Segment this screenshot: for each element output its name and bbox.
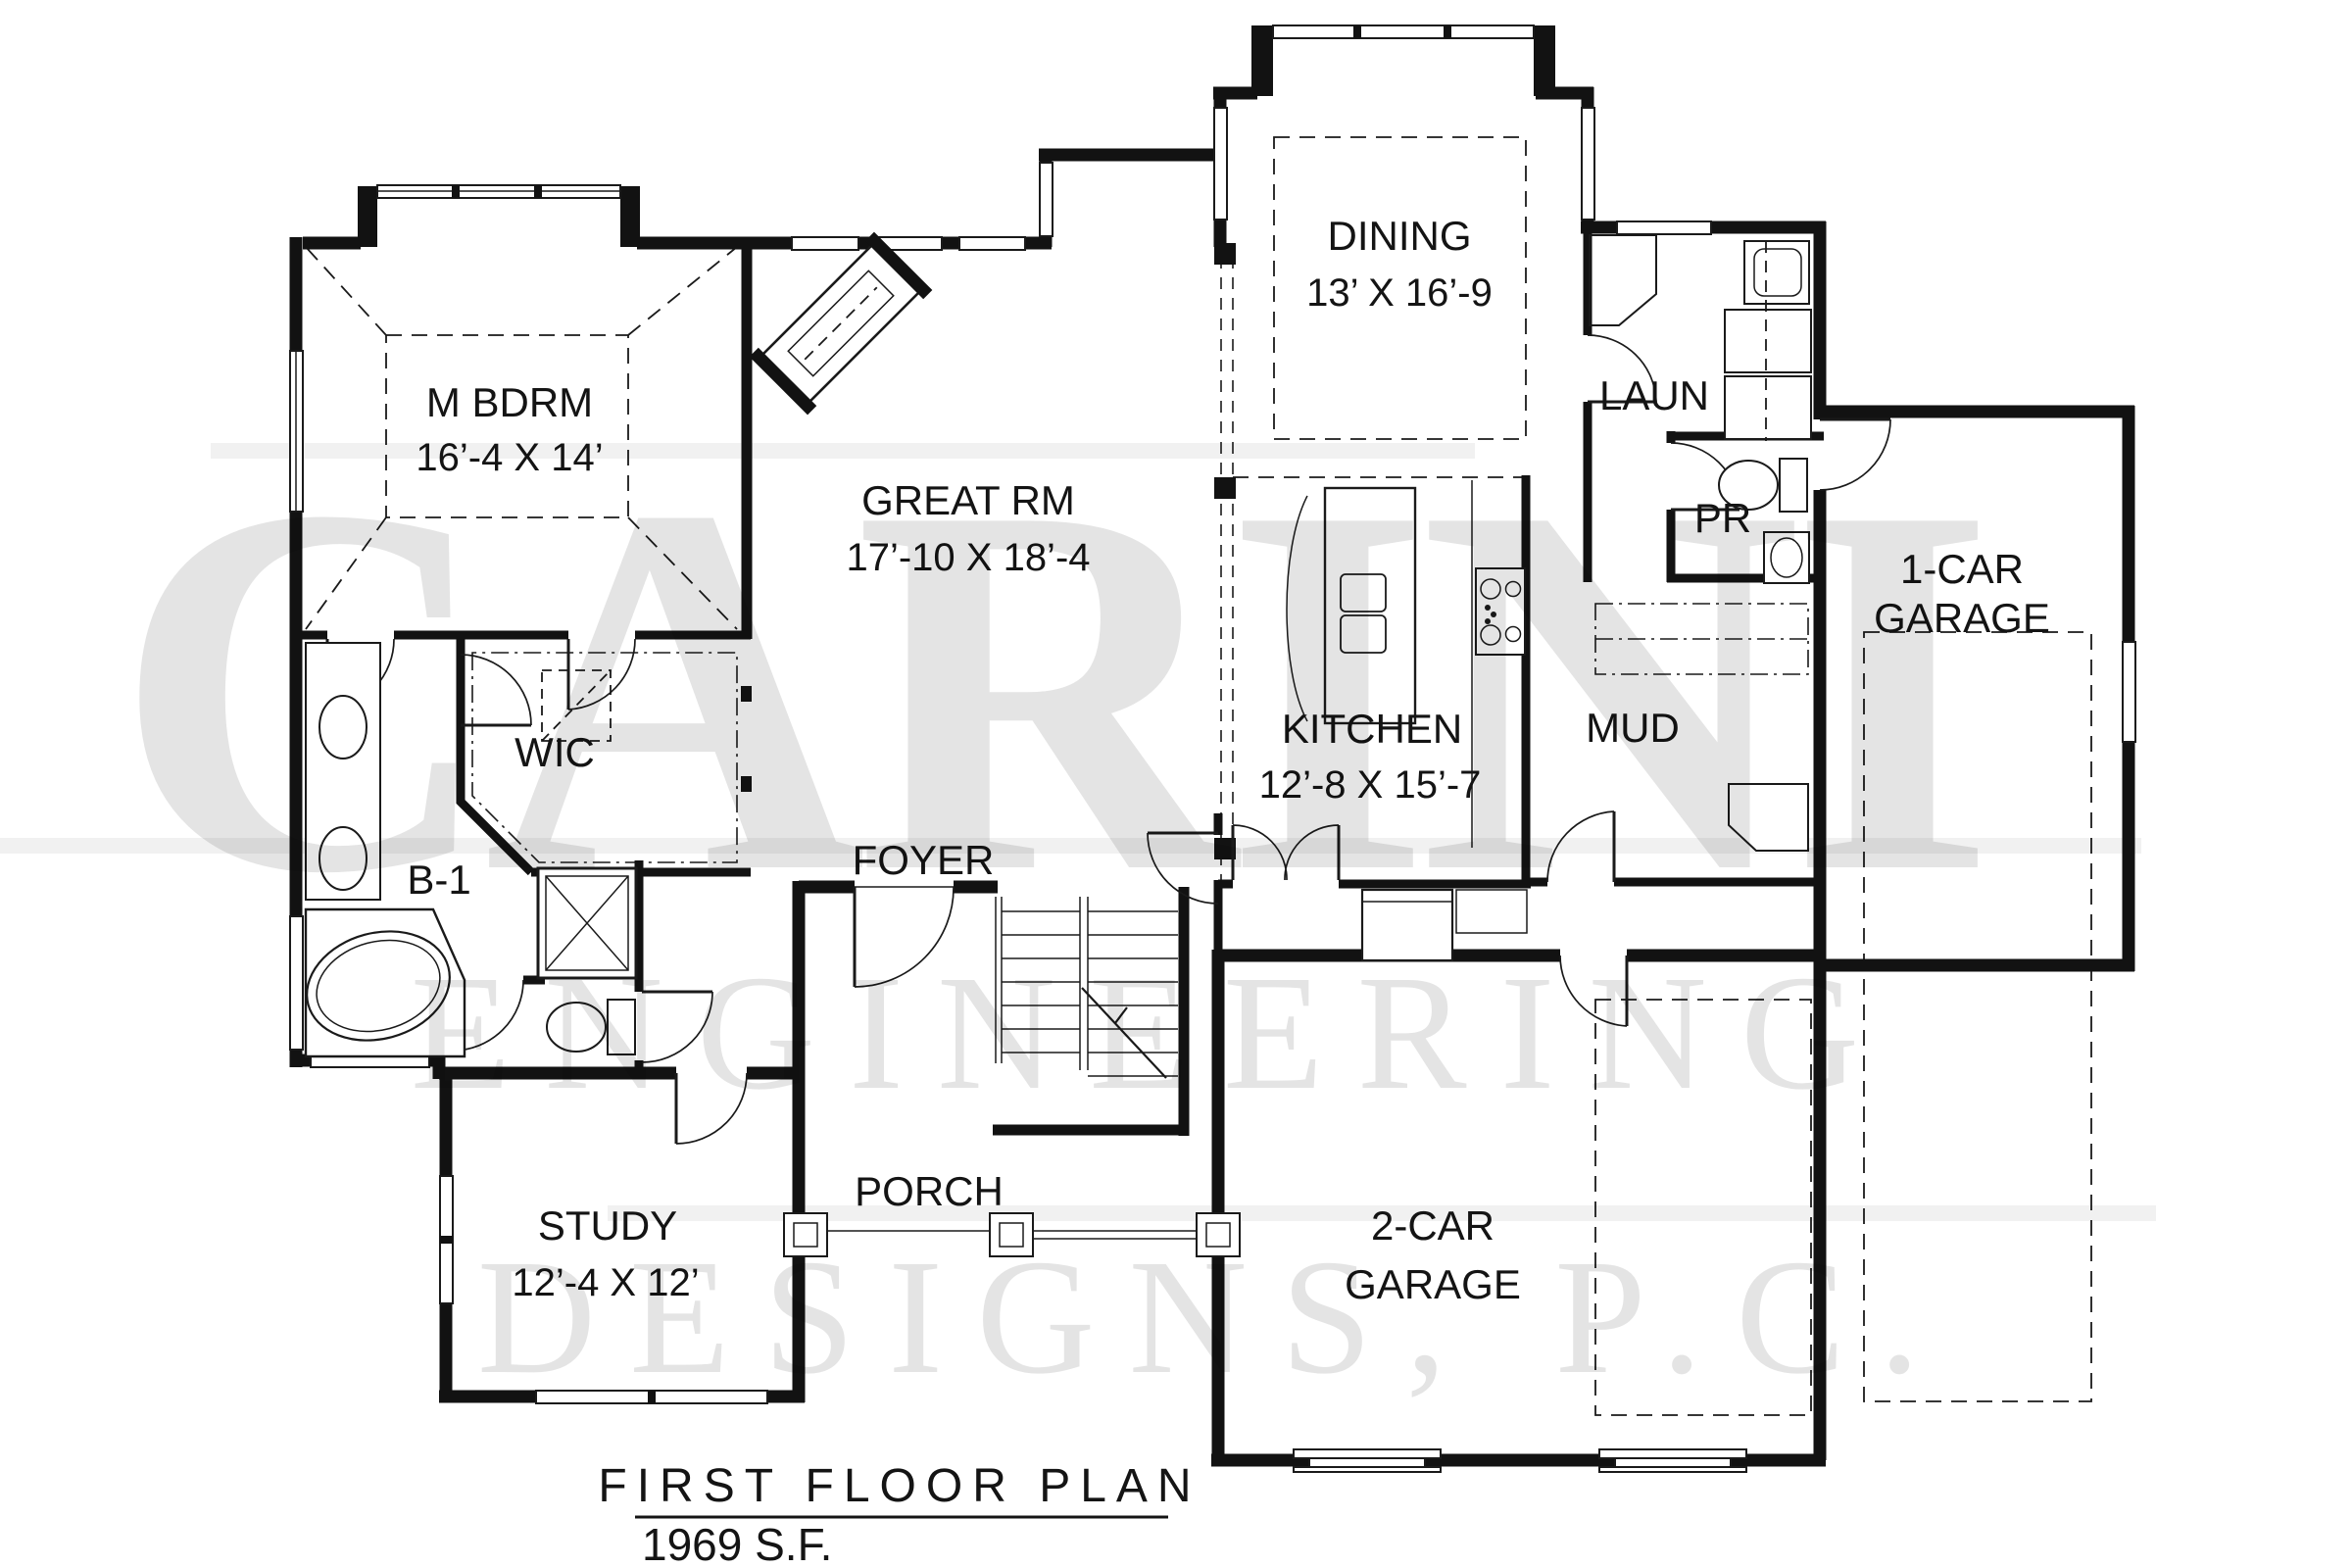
room-label-porch: PORCH xyxy=(855,1168,1004,1214)
window-dining-right xyxy=(1582,108,1594,220)
windows-study-left xyxy=(440,1176,453,1303)
window-garage-right xyxy=(2123,642,2135,742)
window-dining-bay xyxy=(1273,25,1534,38)
room-dims-dining: 13’ X 16’-9 xyxy=(1306,271,1493,315)
garage-door-2car-right xyxy=(1599,1449,1746,1472)
window-neck xyxy=(1040,163,1053,236)
watermark: CARINI ENGINEERING DESIGNS, P.C. xyxy=(114,396,1984,1408)
window-dining-left xyxy=(1214,108,1227,220)
fireplace xyxy=(750,232,933,416)
plan-area: 1969 S.F. xyxy=(642,1519,832,1568)
windows-great-room xyxy=(792,237,1025,250)
watermark-line3: DESIGNS, P.C. xyxy=(477,1226,1953,1408)
window-mbdrm-bay xyxy=(377,185,620,198)
title-block: FIRST FLOOR PLAN 1969 S.F. xyxy=(598,1460,1200,1568)
room-label-dining: DINING xyxy=(1328,213,1472,259)
window-laundry xyxy=(1617,221,1711,234)
floor-plan-drawing: M BDRM 16’-4 X 14’ GREAT RM 17’-10 X 18’… xyxy=(0,0,2352,1568)
floor-plan-page: M BDRM 16’-4 X 14’ GREAT RM 17’-10 X 18’… xyxy=(0,0,2352,1568)
garage-door-2car-left xyxy=(1294,1449,1441,1472)
watermark-line1: CARINI xyxy=(114,396,1984,982)
plan-title: FIRST FLOOR PLAN xyxy=(598,1460,1200,1512)
watermark-line2: ENGINEERING xyxy=(411,942,1892,1124)
